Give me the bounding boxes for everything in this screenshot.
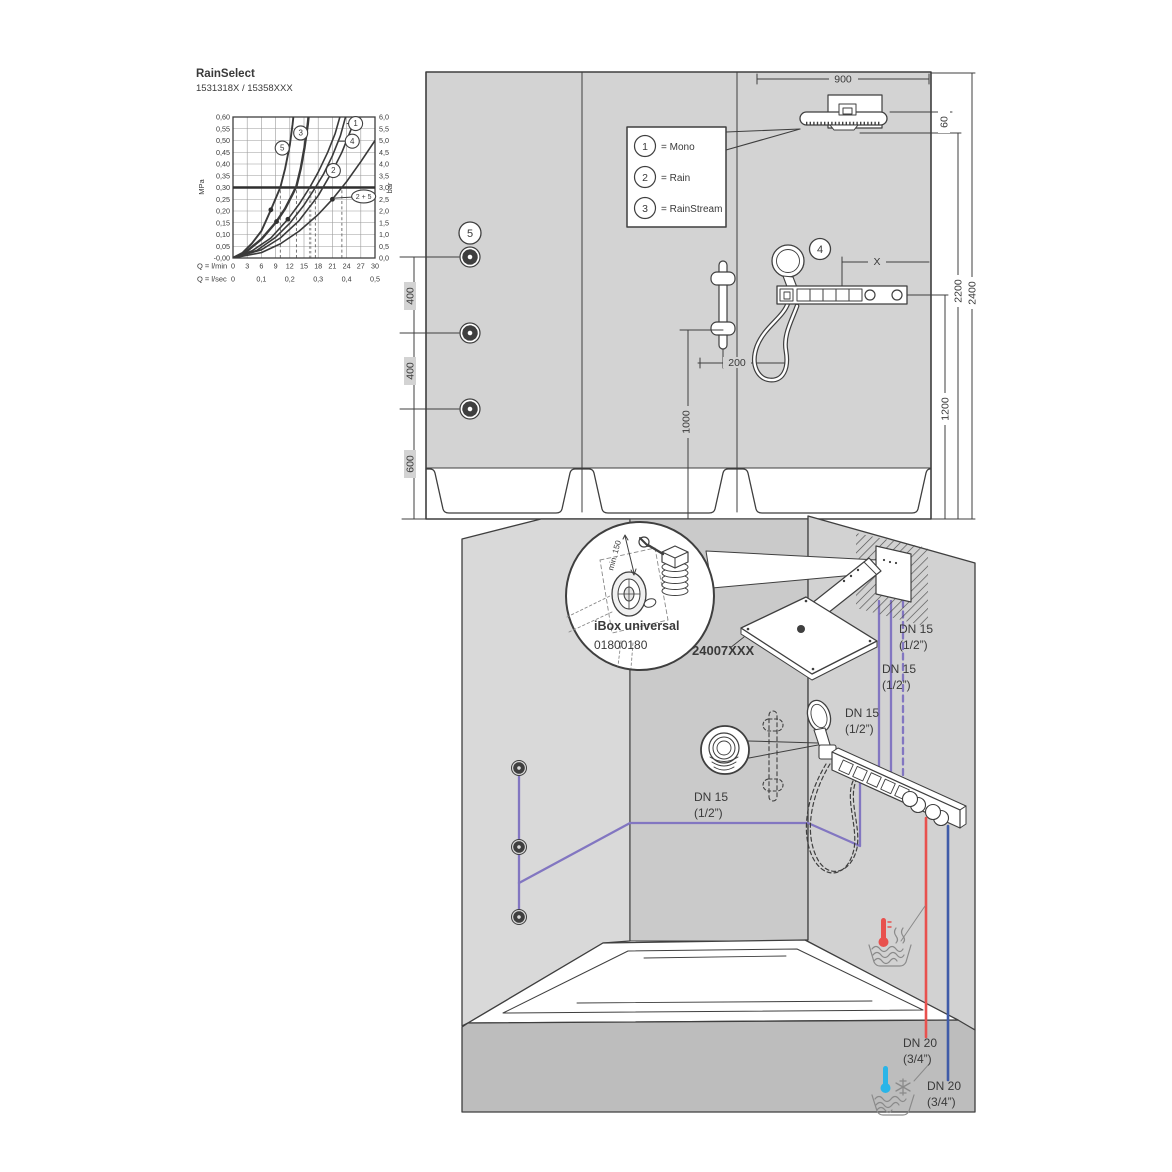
tray-strip bbox=[426, 468, 931, 519]
chart-plot-area: 534122 + 50,606,00,555,50,505,00,454,50,… bbox=[214, 110, 389, 284]
data-marker bbox=[268, 207, 273, 212]
x-primary-tick: 6 bbox=[259, 262, 263, 271]
panel-code: 24007XXX bbox=[692, 643, 754, 658]
y-left-tick: 0,45 bbox=[216, 148, 230, 157]
curve-label-text: 1 bbox=[353, 119, 358, 128]
y-right-tick: 2,5 bbox=[379, 195, 389, 204]
showerhead-base bbox=[830, 125, 858, 130]
dn15-size: (1/2”) bbox=[882, 678, 911, 692]
x-secondary-tick: 0,3 bbox=[313, 275, 323, 284]
threaded-plug bbox=[662, 546, 688, 596]
wall-bar-holder-bottom bbox=[711, 322, 735, 335]
y-left-tick: -0,00 bbox=[214, 254, 230, 263]
y-left-tick: 0,55 bbox=[216, 124, 230, 133]
ibox-title: iBox universal bbox=[594, 619, 679, 633]
y-left-tick: 0,30 bbox=[216, 183, 230, 192]
curve-label-text: 5 bbox=[280, 144, 285, 153]
y-right-tick: 5,5 bbox=[379, 124, 389, 133]
dn15-label: DN 15 bbox=[694, 790, 728, 804]
wall-bar-holder-top bbox=[711, 272, 735, 285]
x-primary-tick: 18 bbox=[314, 262, 322, 271]
x-axis-secondary-label: Q = l/sec bbox=[197, 275, 227, 284]
dn20-label: DN 20 bbox=[927, 1079, 961, 1093]
dim-2200: 2200 bbox=[953, 279, 965, 303]
x-primary-tick: 15 bbox=[300, 262, 308, 271]
x-primary-tick: 9 bbox=[274, 262, 278, 271]
dn15-size: (1/2”) bbox=[845, 722, 874, 736]
dn15-label: DN 15 bbox=[899, 622, 933, 636]
isometric-view: 24007XXX bbox=[462, 516, 975, 1115]
rainselect-bar-elevation bbox=[777, 286, 907, 304]
legend-num-3: 3 bbox=[642, 203, 648, 215]
x-primary-tick: 21 bbox=[328, 262, 336, 271]
ibox-detail: min. 150 iBox universal 01800180 bbox=[566, 522, 714, 670]
y-left-tick: 0,20 bbox=[216, 207, 230, 216]
dim-400-a: 400 bbox=[405, 287, 417, 305]
y-right-tick: 0,5 bbox=[379, 242, 389, 251]
x-primary-tick: 27 bbox=[357, 262, 365, 271]
thermostat-knob bbox=[865, 290, 875, 300]
dim-2400: 2400 bbox=[967, 281, 979, 305]
y-left-tick: 0,50 bbox=[216, 136, 230, 145]
dim-1000: 1000 bbox=[681, 410, 693, 434]
dim-600: 600 bbox=[405, 455, 417, 473]
elevation-view: 1 2 3 = Mono = Rain = RainStream 5 bbox=[400, 72, 979, 519]
dn15-label: DN 15 bbox=[845, 706, 879, 720]
y-right-tick: 6,0 bbox=[379, 113, 389, 122]
x-axis-primary-label: Q = l/min bbox=[197, 262, 227, 271]
legend-num-2: 2 bbox=[642, 172, 648, 184]
curve-label-text: 3 bbox=[298, 129, 303, 138]
showerhead-plate-inner bbox=[843, 108, 852, 114]
dim-x-text: X bbox=[873, 256, 880, 268]
dim-200: 200 bbox=[728, 357, 746, 369]
x-primary-tick: 12 bbox=[286, 262, 294, 271]
x-secondary-tick: 0 bbox=[231, 275, 235, 284]
dn15-size: (1/2”) bbox=[694, 806, 723, 820]
y-left-tick: 0,60 bbox=[216, 113, 230, 122]
y-left-tick: 0,15 bbox=[216, 218, 230, 227]
x-primary-tick: 0 bbox=[231, 262, 235, 271]
diagram-canvas: RainSelect 1531318X / 15358XXX MPa bar Q… bbox=[0, 0, 1172, 1172]
marker-5-text: 5 bbox=[467, 228, 473, 240]
dim-900-text: 900 bbox=[834, 74, 852, 86]
mounting-plate bbox=[876, 546, 911, 602]
dn15-size: (1/2”) bbox=[899, 638, 928, 652]
y-right-tick: 4,5 bbox=[379, 148, 389, 157]
chart-subtitle: 1531318X / 15358XXX bbox=[196, 83, 293, 94]
y-axis-left-label: MPa bbox=[197, 178, 206, 194]
y-right-tick: 3,5 bbox=[379, 171, 389, 180]
marker-4-text: 4 bbox=[817, 244, 823, 256]
y-left-tick: 0,35 bbox=[216, 171, 230, 180]
dim-1200: 1200 bbox=[940, 397, 952, 421]
volume-knob bbox=[892, 290, 902, 300]
x-secondary-tick: 0,5 bbox=[370, 275, 380, 284]
data-marker bbox=[274, 219, 279, 224]
dim-60: 60 bbox=[939, 116, 951, 128]
legend-label-1: = Mono bbox=[661, 142, 695, 153]
x-primary-tick: 30 bbox=[371, 262, 379, 271]
y-right-tick: 3,0 bbox=[379, 183, 389, 192]
y-right-tick: 1,5 bbox=[379, 218, 389, 227]
x-secondary-tick: 0,2 bbox=[285, 275, 295, 284]
legend-label-2: = Rain bbox=[661, 173, 690, 184]
y-left-tick: 0,05 bbox=[216, 242, 230, 251]
x-primary-tick: 3 bbox=[245, 262, 249, 271]
y-right-tick: 5,0 bbox=[379, 136, 389, 145]
dn15-label: DN 15 bbox=[882, 662, 916, 676]
left-dimension-chain: 400 400 600 bbox=[402, 257, 426, 519]
curve-label-text: 2 bbox=[331, 166, 336, 175]
y-right-tick: 0,0 bbox=[379, 254, 389, 263]
curve-1 bbox=[233, 110, 348, 258]
y-right-tick: 2,0 bbox=[379, 207, 389, 216]
y-left-tick: 0,25 bbox=[216, 195, 230, 204]
legend-num-1: 1 bbox=[642, 141, 648, 153]
data-marker bbox=[286, 217, 291, 222]
y-right-tick: 4,0 bbox=[379, 160, 389, 169]
curve-label-text: 2 + 5 bbox=[356, 194, 372, 201]
dn20-size: (3/4”) bbox=[903, 1052, 932, 1066]
dim-400-b: 400 bbox=[405, 362, 417, 380]
installation-sheet: RainSelect 1531318X / 15358XXX MPa bar Q… bbox=[0, 0, 1172, 1172]
y-left-tick: 0,40 bbox=[216, 160, 230, 169]
x-secondary-tick: 0,1 bbox=[256, 275, 266, 284]
bar-end-face bbox=[960, 806, 966, 828]
y-left-tick: 0,10 bbox=[216, 230, 230, 239]
y-right-tick: 1,0 bbox=[379, 230, 389, 239]
dn20-label: DN 20 bbox=[903, 1036, 937, 1050]
panel-connector bbox=[797, 625, 805, 633]
x-secondary-tick: 0,4 bbox=[342, 275, 352, 284]
legend-label-3: = RainStream bbox=[661, 204, 722, 215]
ibox-code: 01800180 bbox=[594, 638, 648, 652]
flow-pressure-chart: RainSelect 1531318X / 15358XXX MPa bar Q… bbox=[196, 68, 394, 284]
chart-title: RainSelect bbox=[196, 68, 255, 80]
dn20-size: (3/4”) bbox=[927, 1095, 956, 1109]
curve-label-text: 4 bbox=[350, 137, 355, 146]
data-marker bbox=[330, 197, 335, 202]
x-primary-tick: 24 bbox=[343, 262, 351, 271]
